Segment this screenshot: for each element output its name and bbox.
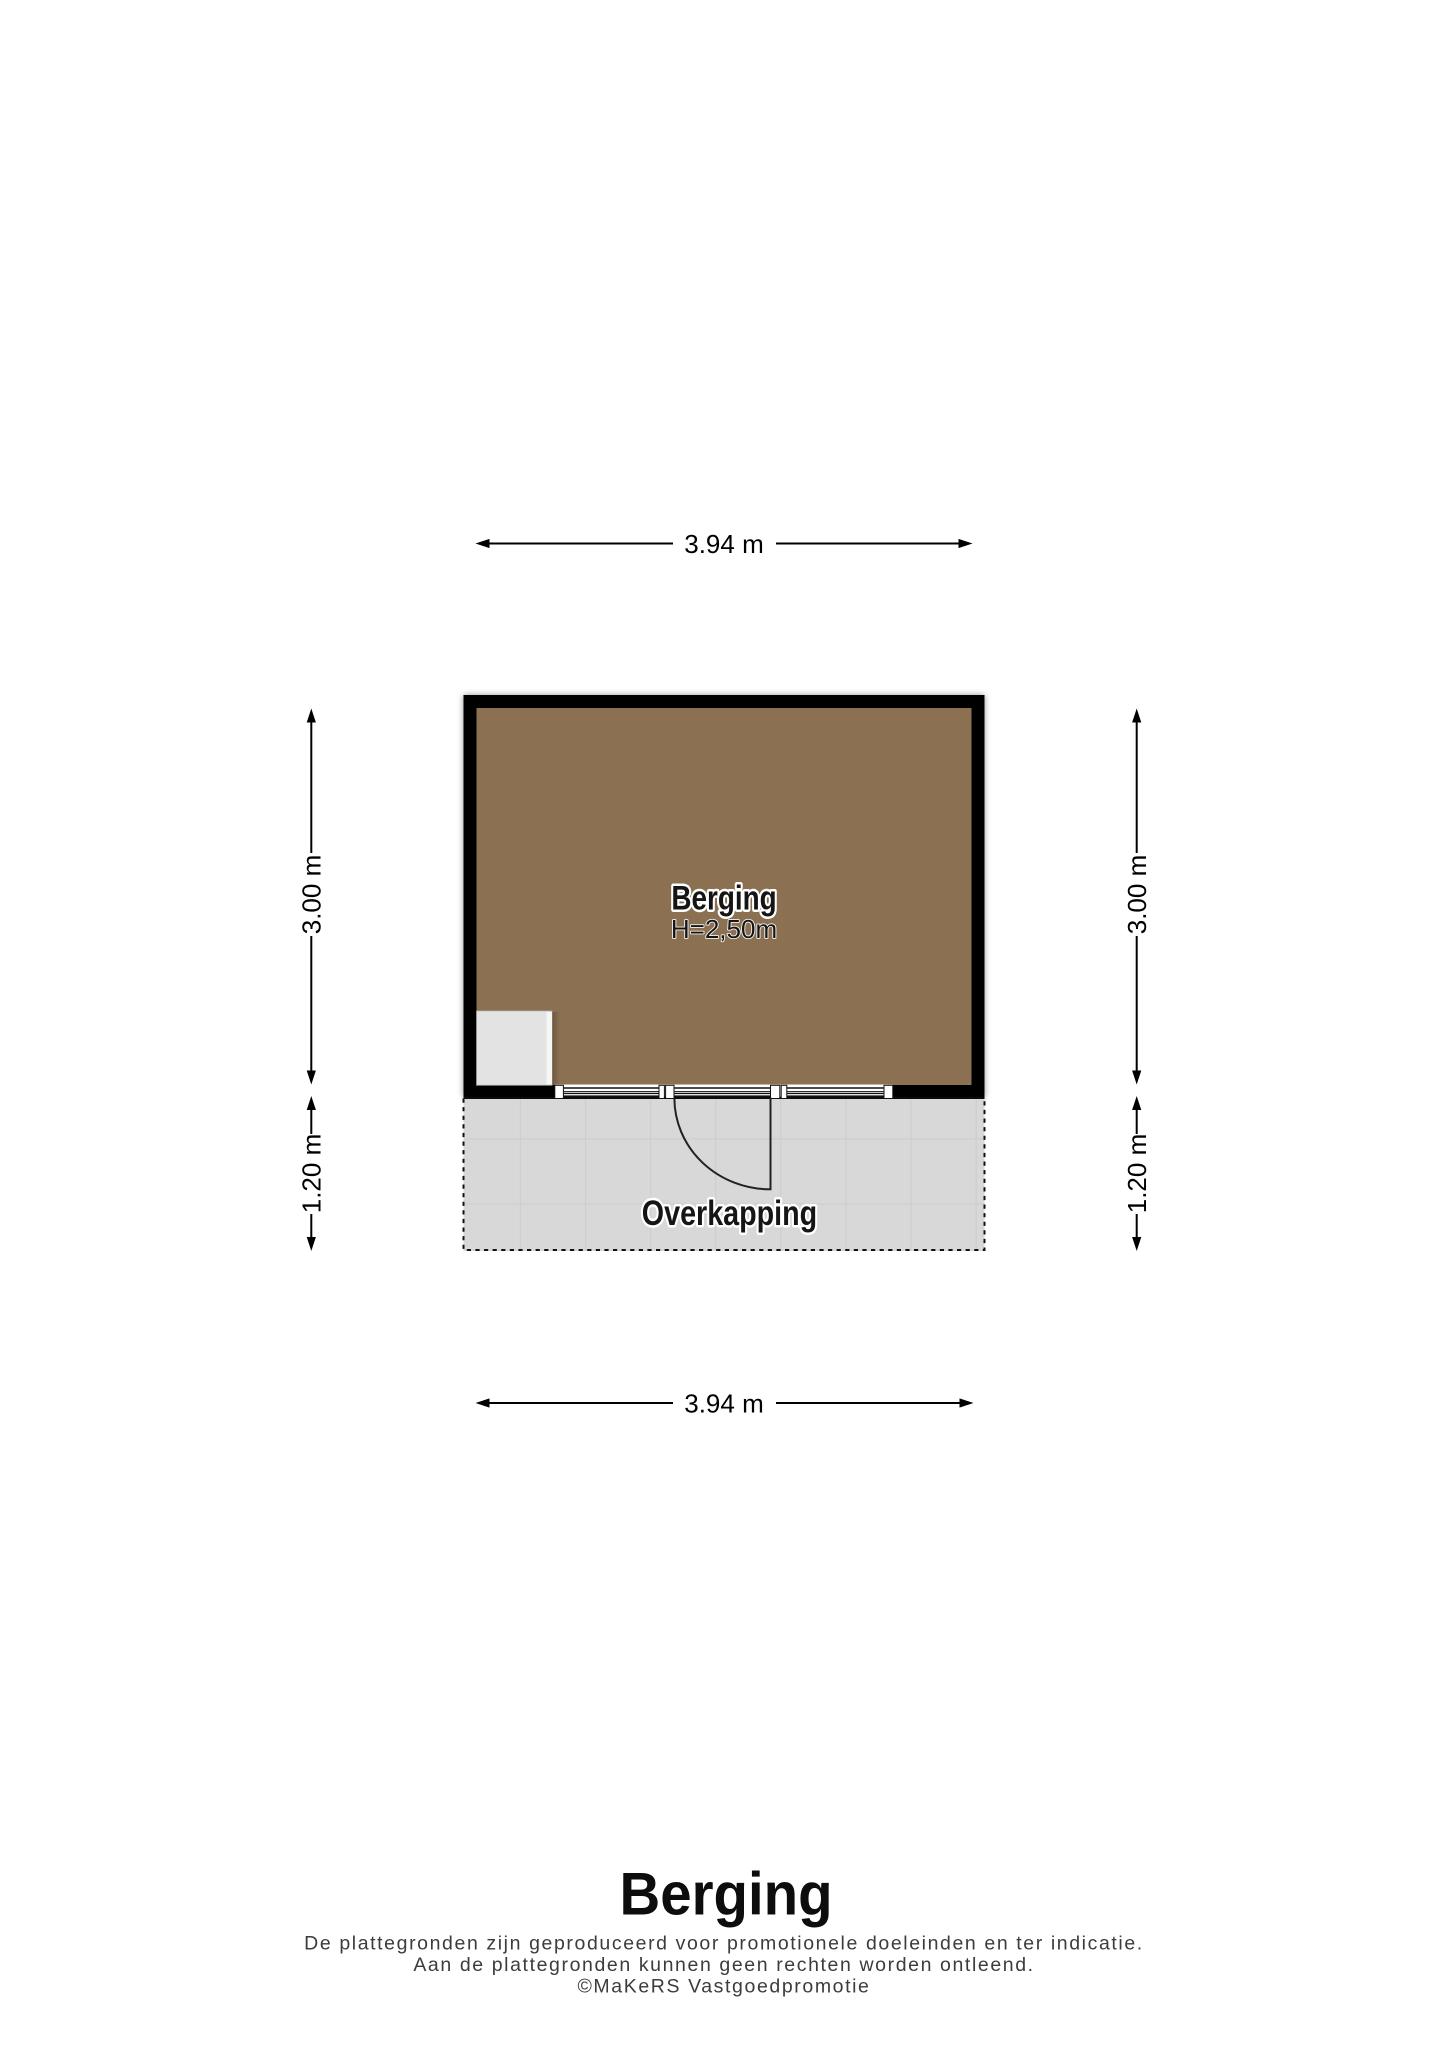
- svg-text:3.94 m: 3.94 m: [684, 1388, 764, 1418]
- svg-text:3.94 m: 3.94 m: [684, 529, 764, 559]
- svg-text:Aan de plattegronden kunnen ge: Aan de plattegronden kunnen geen rechten…: [413, 1954, 1034, 1976]
- svg-text:Berging: Berging: [619, 1861, 832, 1928]
- svg-text:De plattegronden zijn geproduc: De plattegronden zijn geproduceerd voor …: [304, 1933, 1144, 1955]
- svg-text:1.20 m: 1.20 m: [297, 1134, 327, 1214]
- svg-text:3.00 m: 3.00 m: [1122, 855, 1152, 935]
- svg-text:Berging: Berging: [671, 879, 776, 917]
- svg-text:Overkapping: Overkapping: [642, 1193, 817, 1232]
- svg-text:1.20 m: 1.20 m: [1122, 1134, 1152, 1214]
- svg-text:©MaKeRS Vastgoedpromotie: ©MaKeRS Vastgoedpromotie: [577, 1975, 870, 1997]
- svg-text:3.00 m: 3.00 m: [297, 855, 327, 935]
- svg-text:H=2,50m: H=2,50m: [671, 914, 777, 944]
